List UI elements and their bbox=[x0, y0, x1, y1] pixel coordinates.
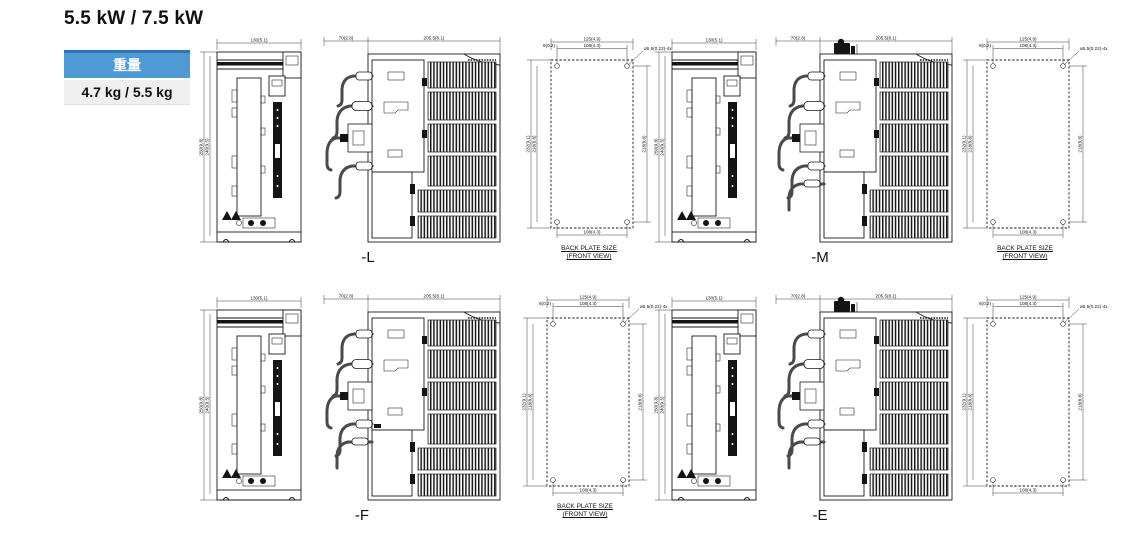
device-front-body bbox=[217, 310, 301, 490]
svg-text:218(8.6): 218(8.6) bbox=[1078, 135, 1083, 153]
svg-text:250(9.8): 250(9.8) bbox=[654, 138, 659, 156]
svg-text:125(4.9): 125(4.9) bbox=[1019, 37, 1037, 42]
page-title: 5.5 kW / 7.5 kW bbox=[64, 8, 203, 30]
mounting-holes bbox=[555, 64, 630, 225]
svg-text:108(4.3): 108(4.3) bbox=[1019, 43, 1037, 48]
device-front-body bbox=[672, 310, 756, 490]
dim-bp-width-outer: 125(4.9) bbox=[583, 37, 601, 42]
svg-text:108(4.3): 108(4.3) bbox=[1019, 301, 1037, 306]
plate-outline bbox=[551, 60, 633, 228]
side-dimensions: 70(2.8) 205.5(8.1) bbox=[776, 294, 952, 313]
weight-header-cell: 重量 bbox=[64, 50, 190, 78]
side-view-m: 70(2.8) 205.5(8.1) bbox=[770, 34, 958, 252]
group-label-e: -E bbox=[798, 507, 842, 524]
svg-text:218(8.6): 218(8.6) bbox=[528, 393, 533, 411]
group-label-f: -F bbox=[340, 507, 384, 524]
side-dimensions: 70(2.8) 205.5(8.1) bbox=[324, 36, 500, 55]
svg-text:70(2.8): 70(2.8) bbox=[339, 294, 354, 299]
dim-bp-width-inner: 108(4.3) bbox=[583, 43, 601, 48]
device-front-body bbox=[217, 52, 301, 232]
svg-text:108(4.3): 108(4.3) bbox=[1019, 488, 1037, 493]
back-plate-m: 125(4.9) 108(4.3) 6(0.2) 232(9.1) 218(8.… bbox=[957, 36, 1093, 262]
back-plate-caption: BACK PLATE SIZE (FRONT VIEW) bbox=[521, 245, 657, 262]
svg-text:6(0.2): 6(0.2) bbox=[979, 301, 991, 306]
mounting-feet bbox=[217, 490, 301, 500]
dim-bp-width-bottom: 108(4.3) bbox=[583, 230, 601, 235]
svg-text:6(0.2): 6(0.2) bbox=[539, 301, 551, 306]
back-plate-dimensions: 125(4.9) 108(4.3) 6(0.2) 232(9.1) 218(8.… bbox=[522, 295, 669, 497]
mounting-holes bbox=[551, 322, 626, 483]
mounting-feet bbox=[672, 232, 756, 242]
mounting-holes bbox=[991, 322, 1066, 483]
mounting-feet bbox=[672, 490, 756, 500]
mounting-feet bbox=[217, 232, 301, 242]
plate-outline bbox=[987, 60, 1069, 228]
svg-text:232(9.1): 232(9.1) bbox=[962, 393, 967, 411]
dim-side-front-depth: 70(2.8) bbox=[339, 36, 354, 41]
cables bbox=[327, 330, 372, 468]
dim-bp-height-outer: 232(9.1) bbox=[526, 135, 531, 153]
dim-bp-height-inner: 218(8.6) bbox=[532, 135, 537, 153]
svg-text:70(2.8): 70(2.8) bbox=[791, 36, 806, 41]
back-plate-dimensions: 125(4.9) 108(4.3) 6(0.2) 232(9.1) 218(8.… bbox=[962, 295, 1109, 497]
side-view-l: 70(2.8) 205.5(8.1) bbox=[318, 34, 506, 252]
back-plate-l: 125(4.9) 108(4.3) 6(0.2) 232(9.1) 218(8.… bbox=[521, 36, 657, 262]
front-view-m: 130(5.1) 250(9.8) 240(9.5) bbox=[652, 36, 768, 248]
front-view-l: 130(5.1) 250(9.8) 240(9.5) bbox=[197, 36, 313, 248]
svg-text:125(4.9): 125(4.9) bbox=[579, 295, 597, 300]
dim-bp-edge-offset: 6(0.2) bbox=[543, 43, 555, 48]
dim-bp-height-right: 218(8.6) bbox=[642, 135, 647, 153]
cables bbox=[779, 330, 824, 468]
svg-text:130(5.1): 130(5.1) bbox=[250, 296, 268, 301]
side-dimensions: 70(2.8) 205.5(8.1) bbox=[776, 36, 952, 55]
svg-text:218(8.6): 218(8.6) bbox=[1078, 393, 1083, 411]
mounting-holes bbox=[991, 64, 1066, 225]
back-plate-f: 125(4.9) 108(4.3) 6(0.2) 232(9.1) 218(8.… bbox=[517, 294, 653, 520]
svg-text:130(5.1): 130(5.1) bbox=[705, 38, 723, 43]
svg-text:70(2.8): 70(2.8) bbox=[791, 294, 806, 299]
svg-text:232(9.1): 232(9.1) bbox=[962, 135, 967, 153]
front-view-f: 130(5.1) 250(9.8) 240(9.5) bbox=[197, 294, 313, 506]
svg-text:250(9.8): 250(9.8) bbox=[199, 396, 204, 414]
back-plate-dimensions: 125(4.9) 108(4.3) 6(0.2) 232(9.1) 218(8.… bbox=[962, 37, 1109, 239]
svg-text:205.5(8.1): 205.5(8.1) bbox=[424, 294, 445, 299]
back-plate-e: 125(4.9) 108(4.3) 6(0.2) 232(9.1) 218(8.… bbox=[957, 294, 1093, 500]
svg-text:130(5.1): 130(5.1) bbox=[705, 296, 723, 301]
svg-text:6(0.2): 6(0.2) bbox=[979, 43, 991, 48]
svg-text:108(4.3): 108(4.3) bbox=[579, 488, 597, 493]
svg-text:108(4.3): 108(4.3) bbox=[579, 301, 597, 306]
svg-text:205.5(8.1): 205.5(8.1) bbox=[876, 294, 897, 299]
svg-text:218(8.6): 218(8.6) bbox=[968, 135, 973, 153]
group-label-m: -M bbox=[798, 249, 842, 266]
svg-text:232(9.1): 232(9.1) bbox=[522, 393, 527, 411]
plate-outline bbox=[987, 318, 1069, 486]
back-plate-caption: BACK PLATE SIZE (FRONT VIEW) bbox=[517, 503, 653, 520]
plate-outline bbox=[547, 318, 629, 486]
front-view-e: 130(5.1) 250(9.8) 240(9.5) bbox=[652, 294, 768, 506]
svg-text:240(9.5): 240(9.5) bbox=[660, 138, 665, 156]
svg-text:108(4.3): 108(4.3) bbox=[1019, 230, 1037, 235]
dim-front-height-inner: 240(9.5) bbox=[205, 138, 210, 156]
group-label-l: -L bbox=[346, 249, 390, 266]
dim-front-width: 130(5.1) bbox=[250, 38, 268, 43]
svg-text:240(9.5): 240(9.5) bbox=[660, 396, 665, 414]
svg-text:250(9.8): 250(9.8) bbox=[654, 396, 659, 414]
side-dimensions: 70(2.8) 205.5(8.1) bbox=[324, 294, 500, 313]
svg-text:ø5.5(0.22)-4x: ø5.5(0.22)-4x bbox=[1080, 46, 1108, 51]
svg-text:ø5.5(0.22)-4x: ø5.5(0.22)-4x bbox=[1080, 304, 1108, 309]
weight-table: 重量 4.7 kg / 5.5 kg bbox=[64, 50, 190, 105]
cables bbox=[327, 72, 372, 198]
svg-text:125(4.9): 125(4.9) bbox=[1019, 295, 1037, 300]
device-front-body bbox=[672, 52, 756, 232]
svg-text:205.5(8.1): 205.5(8.1) bbox=[876, 36, 897, 41]
back-plate-caption: BACK PLATE SIZE (FRONT VIEW) bbox=[957, 245, 1093, 262]
svg-text:240(9.5): 240(9.5) bbox=[205, 396, 210, 414]
svg-text:218(8.6): 218(8.6) bbox=[638, 393, 643, 411]
side-view-e: 70(2.8) 205.5(8.1) bbox=[770, 292, 958, 510]
side-view-f: 70(2.8) 205.5(8.1) bbox=[318, 292, 506, 510]
weight-value-cell: 4.7 kg / 5.5 kg bbox=[64, 80, 190, 105]
dim-side-body-depth: 205.5(8.1) bbox=[424, 36, 445, 41]
back-plate-dimensions: 125(4.9) 108(4.3) 6(0.2) 232(9.1) 218(8.… bbox=[526, 37, 673, 239]
cables bbox=[779, 72, 824, 210]
svg-text:218(8.6): 218(8.6) bbox=[968, 393, 973, 411]
catalog-page: 5.5 kW / 7.5 kW 重量 4.7 kg / 5.5 kg 130(5… bbox=[0, 0, 1137, 558]
dim-front-height-outer: 250(9.8) bbox=[199, 138, 204, 156]
